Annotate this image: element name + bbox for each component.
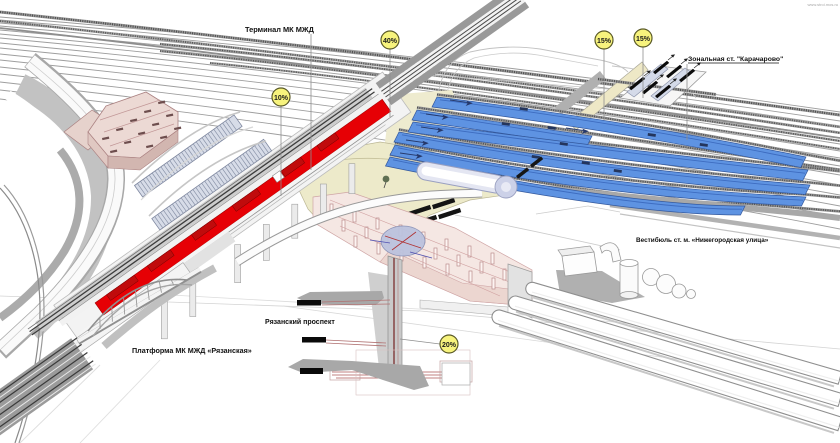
svg-text:40%: 40% — [383, 38, 398, 45]
svg-text:10%: 10% — [274, 95, 289, 102]
svg-text:Рязанский проспект: Рязанский проспект — [265, 318, 335, 326]
svg-text:15%: 15% — [597, 38, 612, 45]
svg-text:20%: 20% — [442, 342, 457, 349]
svg-text:Зональная ст. "Карачарово": Зональная ст. "Карачарово" — [688, 56, 783, 63]
svg-text:Терминал МК МЖД: Терминал МК МЖД — [245, 25, 315, 34]
svg-text:www.stroi.mos.ru: www.stroi.mos.ru — [808, 2, 838, 7]
svg-text:Платформа МК МЖД «Рязанская»: Платформа МК МЖД «Рязанская» — [132, 346, 252, 355]
svg-text:15%: 15% — [636, 36, 651, 43]
svg-text:Вестибюль ст. м. «Нижегородска: Вестибюль ст. м. «Нижегородская улица» — [636, 236, 769, 244]
